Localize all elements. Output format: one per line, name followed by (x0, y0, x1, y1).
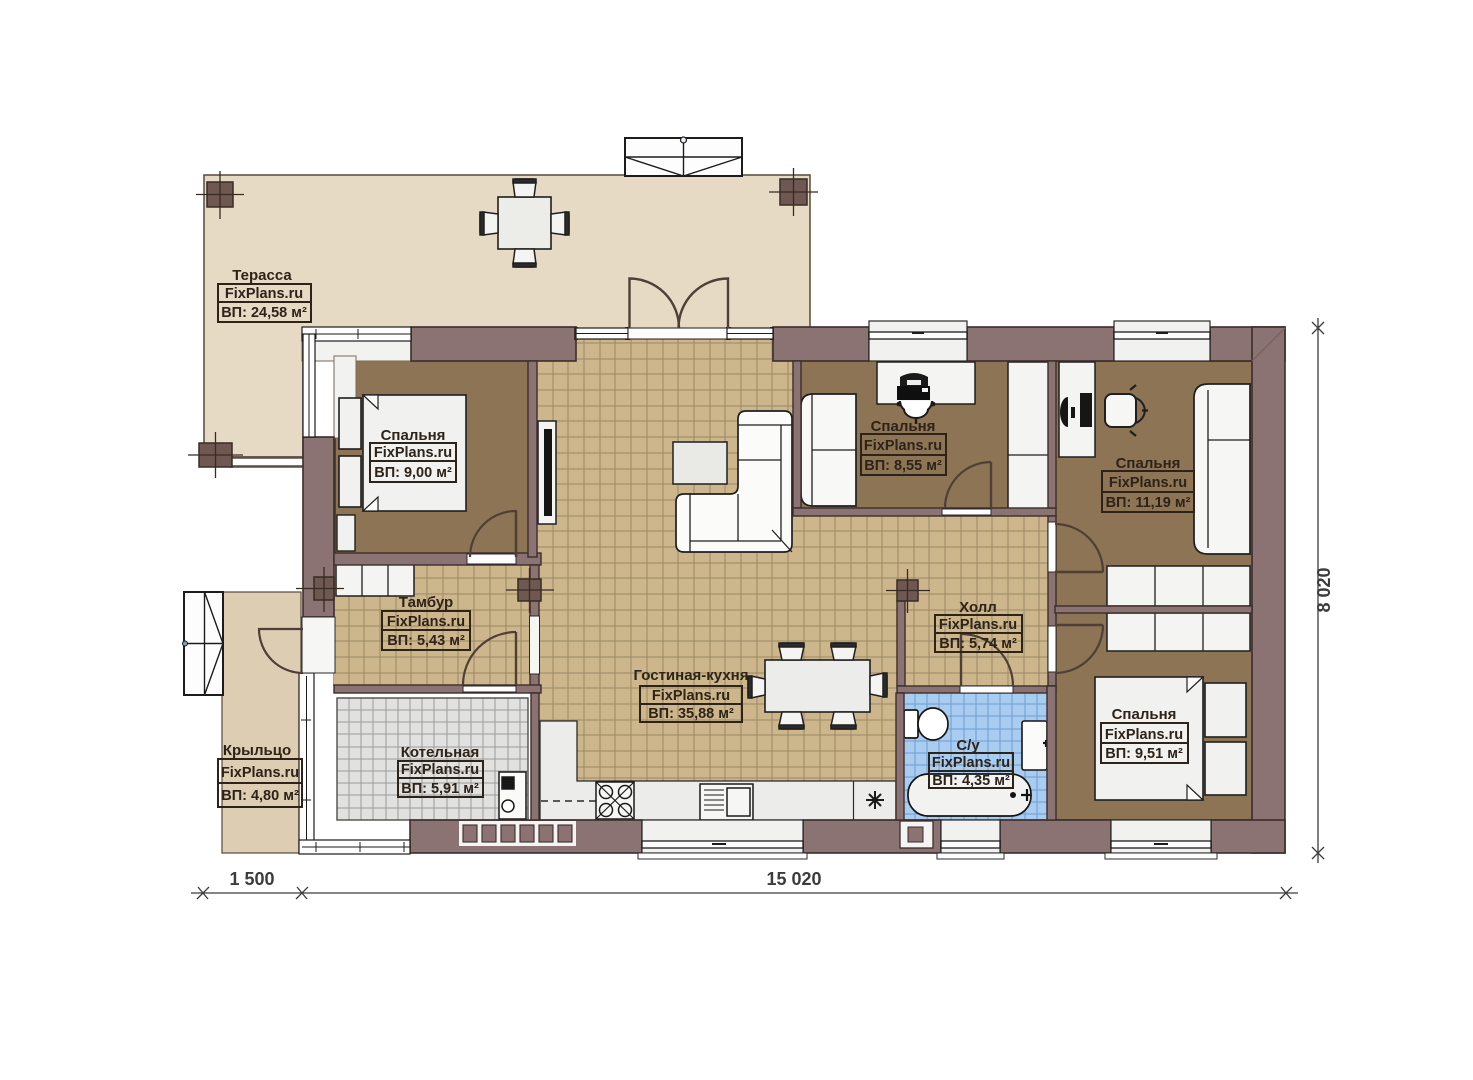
svg-text:ВП: 35,88 м²: ВП: 35,88 м² (648, 706, 734, 722)
svg-text:Холл: Холл (959, 599, 997, 616)
svg-text:ВП: 9,51 м²: ВП: 9,51 м² (1105, 746, 1183, 762)
svg-text:Тамбур: Тамбур (399, 594, 453, 611)
svg-text:FixPlans.ru: FixPlans.ru (1105, 727, 1183, 743)
svg-text:FixPlans.ru: FixPlans.ru (401, 762, 479, 778)
svg-text:С/у: С/у (956, 737, 980, 754)
svg-text:FixPlans.ru: FixPlans.ru (1109, 475, 1187, 491)
svg-text:ВП: 8,55 м²: ВП: 8,55 м² (864, 458, 942, 474)
svg-text:Крыльцо: Крыльцо (223, 742, 291, 759)
svg-text:15 020: 15 020 (766, 869, 821, 889)
svg-text:ВП: 11,19 м²: ВП: 11,19 м² (1106, 495, 1191, 511)
svg-text:FixPlans.ru: FixPlans.ru (652, 688, 730, 704)
svg-text:FixPlans.ru: FixPlans.ru (374, 445, 452, 461)
svg-text:FixPlans.ru: FixPlans.ru (221, 765, 299, 781)
svg-text:ВП: 24,58 м²: ВП: 24,58 м² (221, 305, 307, 321)
svg-text:Спальня: Спальня (381, 427, 446, 444)
svg-text:Спальня: Спальня (1112, 706, 1177, 723)
svg-text:Спальня: Спальня (871, 418, 936, 435)
svg-text:FixPlans.ru: FixPlans.ru (864, 438, 942, 454)
svg-text:FixPlans.ru: FixPlans.ru (932, 755, 1010, 771)
svg-text:8 020: 8 020 (1314, 567, 1334, 612)
svg-text:Котельная: Котельная (401, 744, 480, 761)
svg-text:ВП: 5,43 м²: ВП: 5,43 м² (387, 633, 465, 649)
svg-text:FixPlans.ru: FixPlans.ru (387, 614, 465, 630)
svg-text:ВП: 5,91 м²: ВП: 5,91 м² (401, 781, 479, 797)
svg-text:1 500: 1 500 (229, 869, 274, 889)
svg-text:FixPlans.ru: FixPlans.ru (225, 286, 303, 302)
svg-text:ВП: 5,74 м²: ВП: 5,74 м² (939, 636, 1017, 652)
svg-text:ВП: 4,80 м²: ВП: 4,80 м² (221, 788, 299, 804)
svg-text:Гостиная-кухня: Гостиная-кухня (634, 667, 749, 684)
svg-text:Спальня: Спальня (1116, 455, 1181, 472)
svg-text:FixPlans.ru: FixPlans.ru (939, 617, 1017, 633)
svg-text:Терасса: Терасса (232, 267, 292, 284)
svg-text:ВП: 9,00 м²: ВП: 9,00 м² (374, 465, 452, 481)
svg-text:ВП: 4,35 м²: ВП: 4,35 м² (932, 773, 1010, 789)
